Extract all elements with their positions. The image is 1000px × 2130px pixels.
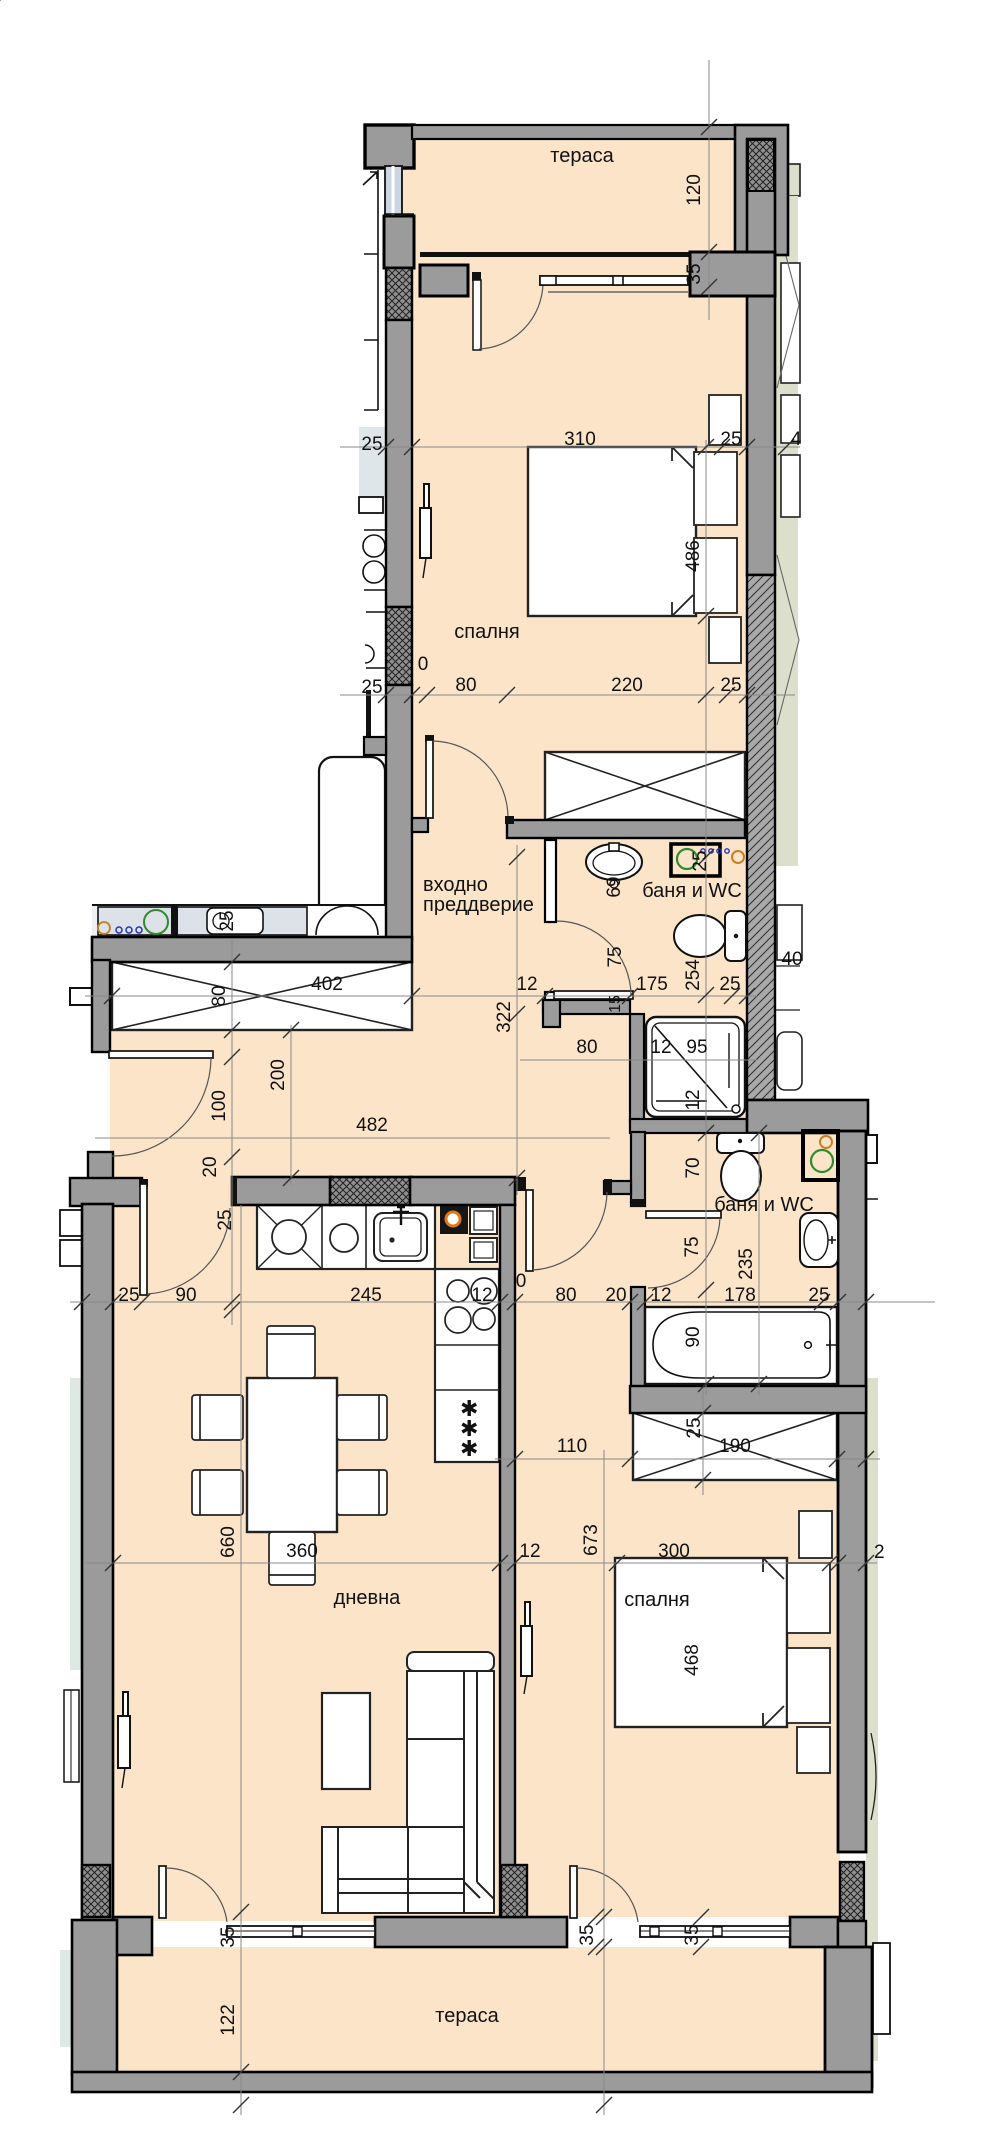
svg-text:дневна: дневна [334, 1587, 402, 1609]
svg-text:преддверие: преддверие [423, 894, 534, 916]
svg-text:200: 200 [268, 1059, 289, 1091]
svg-text:25: 25 [118, 1285, 139, 1306]
svg-text:тераса: тераса [435, 2005, 499, 2027]
svg-text:25: 25 [720, 675, 741, 696]
svg-text:90: 90 [175, 1285, 196, 1306]
svg-text:90: 90 [683, 1326, 704, 1347]
svg-text:25: 25 [361, 434, 382, 455]
svg-text:25: 25 [684, 1417, 705, 1438]
svg-text:12: 12 [683, 1089, 704, 1110]
svg-text:25: 25 [808, 1285, 829, 1306]
svg-text:80: 80 [555, 1285, 576, 1306]
svg-text:120: 120 [684, 174, 705, 206]
svg-text:110: 110 [557, 1436, 587, 1457]
svg-text:468: 468 [682, 1644, 703, 1676]
svg-text:25: 25 [720, 429, 741, 450]
svg-text:75: 75 [605, 946, 626, 967]
svg-text:✱: ✱ [460, 1436, 478, 1461]
svg-text:402: 402 [311, 974, 343, 995]
svg-text:12: 12 [650, 1285, 671, 1306]
svg-text:660: 660 [218, 1526, 239, 1558]
svg-text:12: 12 [519, 1541, 540, 1562]
svg-text:12: 12 [516, 974, 537, 995]
svg-text:482: 482 [356, 1115, 388, 1136]
svg-text:310: 310 [564, 429, 596, 450]
svg-text:25: 25 [690, 850, 711, 871]
svg-text:0: 0 [516, 1271, 527, 1292]
svg-text:баня и WC: баня и WC [642, 880, 742, 902]
svg-text:80: 80 [576, 1037, 597, 1058]
svg-text:15: 15 [607, 995, 624, 1013]
svg-text:175: 175 [636, 974, 668, 995]
svg-text:122: 122 [218, 2004, 239, 2036]
svg-text:300: 300 [658, 1541, 690, 1562]
svg-text:20: 20 [200, 1156, 221, 1177]
svg-text:70: 70 [683, 1157, 704, 1178]
svg-text:75: 75 [682, 1236, 703, 1257]
svg-text:спалня: спалня [454, 621, 520, 643]
svg-text:80: 80 [209, 985, 230, 1006]
svg-text:входно: входно [423, 874, 488, 896]
svg-text:0: 0 [418, 654, 429, 675]
svg-text:25: 25 [719, 974, 740, 995]
svg-text:4: 4 [791, 429, 802, 450]
svg-text:2: 2 [874, 1542, 885, 1563]
svg-text:322: 322 [494, 1001, 515, 1033]
svg-text:254: 254 [683, 959, 704, 991]
svg-text:35: 35 [577, 1924, 598, 1945]
svg-text:20: 20 [605, 1285, 626, 1306]
svg-text:спалня: спалня [624, 1589, 690, 1611]
svg-text:40: 40 [781, 949, 802, 970]
svg-text:тераса: тераса [550, 145, 614, 167]
svg-text:190: 190 [719, 1436, 751, 1457]
svg-text:баня и WC: баня и WC [714, 1194, 814, 1216]
svg-text:35: 35 [218, 1926, 239, 1947]
svg-text:360: 360 [286, 1541, 318, 1562]
svg-text:220: 220 [611, 675, 643, 696]
svg-text:95: 95 [686, 1037, 707, 1058]
svg-text:100: 100 [209, 1090, 230, 1122]
svg-text:673: 673 [581, 1524, 602, 1556]
svg-text:25: 25 [215, 1209, 236, 1230]
svg-text:12: 12 [650, 1037, 671, 1058]
svg-text:178: 178 [724, 1285, 756, 1306]
svg-text:69: 69 [604, 876, 625, 897]
svg-text:35: 35 [682, 1924, 703, 1945]
svg-text:80: 80 [455, 675, 476, 696]
svg-text:25: 25 [361, 677, 382, 698]
svg-text:35: 35 [684, 263, 705, 284]
svg-text:12: 12 [471, 1285, 492, 1306]
svg-text:245: 245 [350, 1285, 382, 1306]
svg-text:486: 486 [683, 540, 704, 572]
svg-text:25: 25 [217, 910, 238, 931]
svg-text:235: 235 [736, 1248, 757, 1280]
